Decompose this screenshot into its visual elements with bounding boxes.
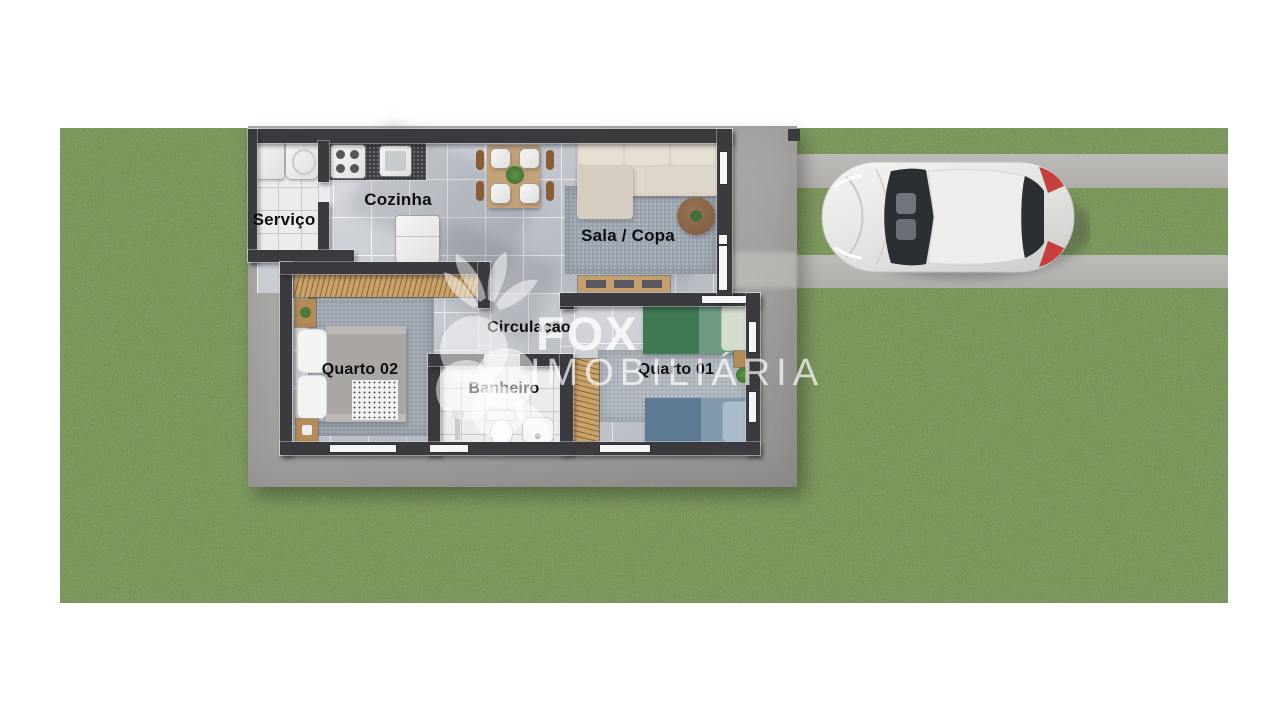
- table-plant: [690, 210, 702, 222]
- dining-chair: [491, 149, 510, 168]
- nightstand: [296, 419, 318, 443]
- lamp: [302, 425, 312, 435]
- sofa-cushion: [625, 141, 669, 165]
- plant: [300, 307, 311, 318]
- watermark-subtitle-text: IMOBILIÁRIA: [530, 352, 824, 395]
- chair-back: [546, 181, 554, 201]
- dining-chair: [491, 184, 510, 203]
- chair-back: [546, 150, 554, 170]
- single-bed-blue: [645, 398, 753, 445]
- windshield: [884, 169, 934, 266]
- wall-west-upper: [248, 129, 257, 262]
- coffee-table: [677, 197, 715, 235]
- burner: [336, 164, 345, 173]
- sofa-seat: [647, 167, 715, 193]
- burner: [336, 150, 345, 159]
- wall-laundry-divider: [318, 141, 329, 182]
- room-label-cozinha: Cozinha: [364, 190, 432, 210]
- window-sill: [749, 392, 756, 422]
- fridge-door-line: [396, 236, 439, 237]
- dining-chair: [520, 149, 539, 168]
- washing-machine: [286, 141, 318, 179]
- pad-corner-marker: [788, 129, 800, 141]
- nightstand: [295, 299, 316, 327]
- sofa-cushion: [579, 141, 623, 165]
- pillow: [722, 306, 748, 350]
- floorplan-render: Serviço Cozinha Sala / Copa Quarto 02 Ci…: [0, 0, 1280, 720]
- room-label-sala-copa: Sala / Copa: [581, 226, 675, 246]
- sofa-cushion: [671, 141, 715, 165]
- throw-blanket: [352, 380, 398, 420]
- room-label-servico: Serviço: [253, 210, 316, 230]
- table-plant: [506, 166, 524, 184]
- window-sill: [600, 445, 650, 452]
- car-seat: [896, 193, 916, 214]
- car-roof: [928, 170, 1029, 265]
- room-label-quarto02: Quarto 02: [322, 361, 399, 379]
- car-seat: [896, 219, 916, 240]
- wall-laundry-divider: [318, 202, 329, 254]
- sink-basin: [385, 151, 406, 171]
- burner: [350, 164, 359, 173]
- dining-chair: [520, 184, 539, 203]
- single-bed-green: [643, 302, 751, 354]
- sofa-chaise: [577, 166, 633, 219]
- wall-bedroom02-west: [280, 262, 292, 455]
- window-sill: [749, 322, 756, 352]
- tv-stand-drawer: [586, 280, 606, 288]
- chair-back: [476, 181, 484, 201]
- window-sill: [719, 235, 727, 244]
- chair-back: [476, 150, 484, 170]
- laundry-door-opening: [318, 180, 330, 202]
- blanket: [645, 398, 701, 445]
- entry-walkway: [727, 252, 797, 288]
- sliding-door-sill: [719, 246, 727, 290]
- window-sill: [720, 152, 727, 184]
- burner: [350, 150, 359, 159]
- window-sill: [330, 445, 396, 452]
- wall-under-laundry: [248, 250, 354, 262]
- parked-car: [812, 155, 1090, 287]
- kitchen-sink: [380, 146, 411, 176]
- window-sill: [702, 296, 746, 303]
- washer-drum: [292, 149, 316, 175]
- rear-window: [1021, 176, 1044, 258]
- blanket: [643, 302, 699, 354]
- tv-stand: [578, 276, 670, 292]
- pillow: [298, 376, 326, 418]
- tv-stand-drawer: [642, 280, 662, 288]
- stove-cooktop: [331, 145, 365, 178]
- tv-stand-drawer: [614, 280, 634, 288]
